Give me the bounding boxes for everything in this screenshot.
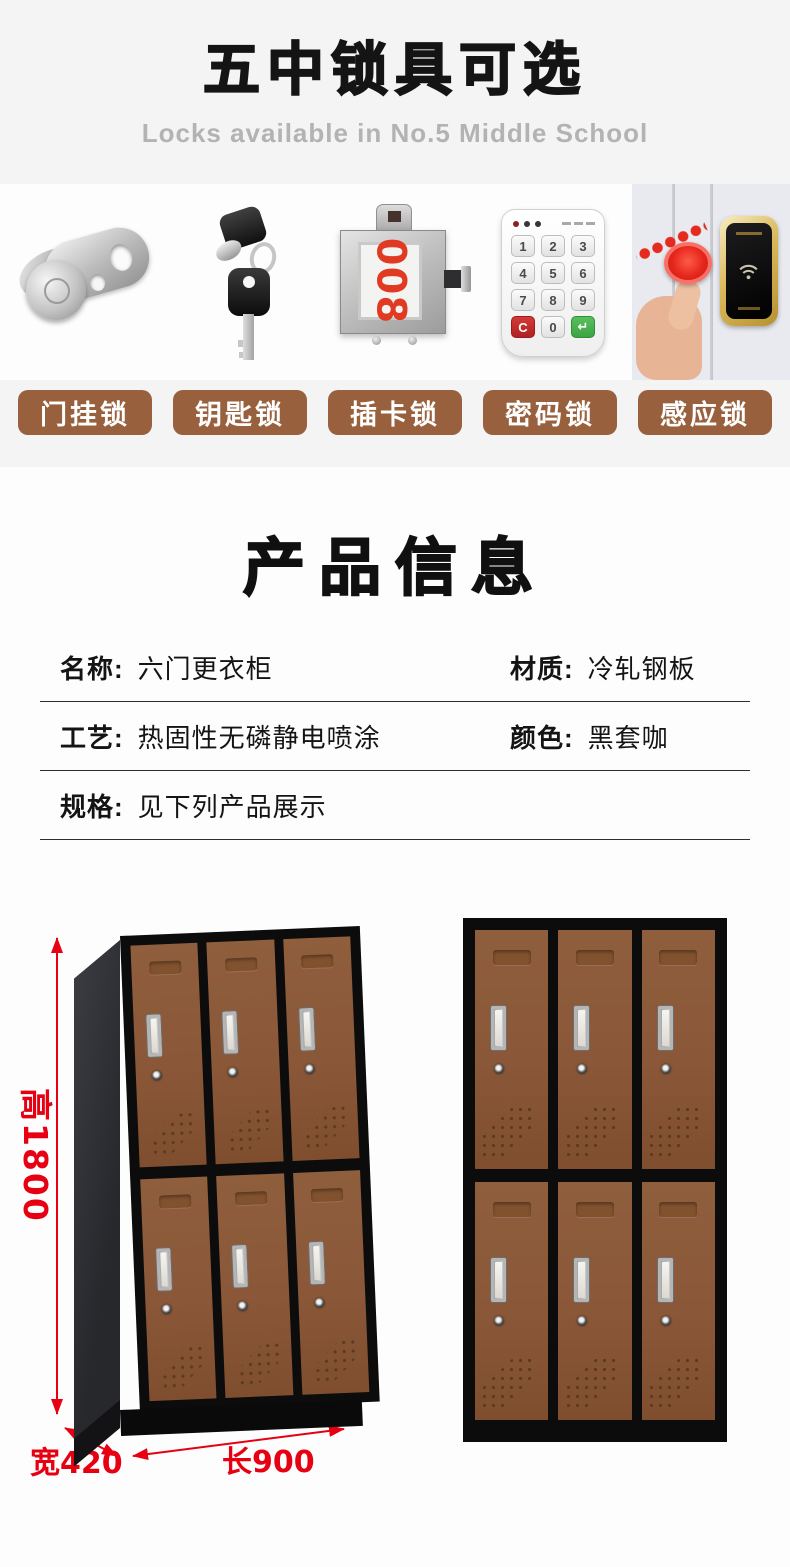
keyhole: [304, 1064, 314, 1074]
field-label-name: 名称:: [60, 649, 124, 686]
locker-3d-view: [62, 926, 372, 1471]
locker-door: [475, 1182, 548, 1421]
locker-front-doors: [120, 926, 380, 1412]
locker-door: [207, 940, 284, 1165]
product-info-section: 产品信息 名称: 六门更衣柜 材质: 冷轧钢板 工艺: 热固性无磷静电喷涂 颜色…: [0, 467, 790, 840]
field-value-name: 六门更衣柜: [138, 649, 273, 686]
width-arrow: [65, 1428, 117, 1456]
page-title: 五中锁具可选: [0, 34, 790, 106]
vent-holes: [480, 1356, 536, 1410]
door-handle: [232, 1245, 248, 1288]
vent-holes: [236, 1341, 284, 1389]
keyhole: [661, 1064, 671, 1074]
field-label-color: 颜色:: [510, 718, 574, 755]
keypad-enter-key: ↵: [571, 316, 595, 338]
locker-front-view: [463, 918, 727, 1442]
field-label-spec: 规格:: [60, 787, 124, 824]
locker-side-panel: [74, 940, 120, 1441]
keyhole: [314, 1298, 324, 1308]
locker-door: [293, 1170, 370, 1395]
door-handle: [658, 1258, 673, 1302]
product-info-table: 名称: 六门更衣柜 材质: 冷轧钢板 工艺: 热固性无磷静电喷涂 颜色: 黑套咖: [40, 633, 750, 840]
door-handle: [309, 1242, 325, 1285]
door-handle: [658, 1006, 673, 1050]
locker-door: [216, 1173, 293, 1398]
locker-door: [130, 943, 207, 1168]
keypad-key: 2: [541, 235, 565, 257]
door-handle: [146, 1014, 162, 1057]
vent-holes: [150, 1110, 198, 1158]
vent-holes: [226, 1107, 274, 1155]
lock-type-badge-induction: 感应锁: [638, 390, 772, 435]
table-row: 工艺: 热固性无磷静电喷涂 颜色: 黑套咖: [40, 702, 750, 771]
keypad-key: 5: [541, 262, 565, 284]
door-handle: [574, 1006, 589, 1050]
door-handle: [574, 1258, 589, 1302]
keypad-key: 7: [511, 289, 535, 311]
length-dimension-label: 长900: [222, 1437, 315, 1481]
vent-holes: [647, 1356, 703, 1410]
keypad-key: 1: [511, 235, 535, 257]
vent-holes: [647, 1105, 703, 1159]
lock-type-badge-hasp: 门挂锁: [18, 390, 152, 435]
keyhole: [152, 1070, 162, 1080]
locker-door: [642, 1182, 715, 1421]
keypad-clear-key: C: [511, 316, 535, 338]
vent-holes: [302, 1104, 350, 1152]
keypad-lock-icon: 1 2 3 4 5 6 7 8 9 C 0 ↵: [501, 209, 605, 357]
door-handle: [156, 1248, 172, 1291]
keypad-lock-photo: 1 2 3 4 5 6 7 8 9 C 0 ↵: [474, 184, 632, 380]
lock-options-section: 五中锁具可选 Locks available in No.5 Middle Sc…: [0, 0, 790, 467]
keyhole: [494, 1316, 504, 1326]
card-lock-photo: 008: [316, 184, 474, 380]
keyhole: [661, 1316, 671, 1326]
keyhole: [228, 1067, 238, 1077]
field-label-material: 材质:: [510, 649, 574, 686]
door-handle: [491, 1006, 506, 1050]
locker-door: [283, 936, 360, 1161]
keyhole: [238, 1301, 248, 1311]
keyhole: [161, 1304, 171, 1314]
induction-lock-photo: [632, 184, 790, 380]
keyhole: [494, 1064, 504, 1074]
rfid-fob: [664, 242, 712, 284]
width-dimension-label: 宽420: [30, 1438, 123, 1482]
card-lock-number: 008: [367, 238, 413, 325]
lock-type-badge-card: 插卡锁: [328, 390, 462, 435]
led-indicator: [535, 221, 541, 227]
page-subtitle: Locks available in No.5 Middle School: [0, 118, 790, 150]
hand: [636, 296, 702, 380]
vent-holes: [312, 1337, 360, 1385]
vent-holes: [564, 1105, 620, 1159]
keyhole: [577, 1064, 587, 1074]
keypad-key: 0: [541, 316, 565, 338]
vent-holes: [160, 1344, 208, 1392]
locker-door: [558, 1182, 631, 1421]
locker-door: [558, 930, 631, 1169]
lock-type-badge-key: 钥匙锁: [173, 390, 307, 435]
keypad-grid: 1 2 3 4 5 6 7 8 9 C 0 ↵: [511, 235, 595, 338]
locker-door: [475, 930, 548, 1169]
lock-photos-row: 008 1 2 3: [0, 184, 790, 380]
table-row: 名称: 六门更衣柜 材质: 冷轧钢板: [40, 633, 750, 702]
locker-door: [642, 930, 715, 1169]
keypad-key: 4: [511, 262, 535, 284]
rfid-signal-icon: [736, 259, 761, 284]
induction-lock-icon: [720, 216, 778, 326]
key-lock-photo: [158, 184, 316, 380]
led-indicator: [513, 221, 519, 227]
keypad-key: 9: [571, 289, 595, 311]
keyhole: [577, 1316, 587, 1326]
hasp-lock-photo: [0, 184, 158, 380]
keypad-key: 3: [571, 235, 595, 257]
field-label-process: 工艺:: [60, 718, 124, 755]
lock-type-badge-password: 密码锁: [483, 390, 617, 435]
lock-type-labels: 门挂锁 钥匙锁 插卡锁 密码锁 感应锁: [0, 380, 790, 435]
door-handle: [223, 1011, 239, 1054]
length-arrow: [133, 1429, 344, 1456]
field-value-color: 黑套咖: [588, 718, 669, 755]
field-value-material: 冷轧钢板: [588, 649, 696, 686]
field-value-process: 热固性无磷静电喷涂: [138, 718, 381, 755]
locker-door: [140, 1177, 217, 1402]
height-dimension-label: 高1800: [14, 1088, 62, 1332]
product-detail-image: 五中锁具可选 Locks available in No.5 Middle Sc…: [0, 0, 790, 1567]
product-info-title: 产品信息: [0, 467, 790, 607]
field-value-spec: 见下列产品展示: [138, 787, 327, 824]
door-handle: [299, 1008, 315, 1051]
led-indicator: [524, 221, 530, 227]
table-row: 规格: 见下列产品展示: [40, 771, 750, 840]
keypad-key: 8: [541, 289, 565, 311]
keypad-key: 6: [571, 262, 595, 284]
vent-holes: [564, 1356, 620, 1410]
locker-plinth: [120, 1400, 363, 1436]
vent-holes: [480, 1105, 536, 1159]
door-handle: [491, 1258, 506, 1302]
